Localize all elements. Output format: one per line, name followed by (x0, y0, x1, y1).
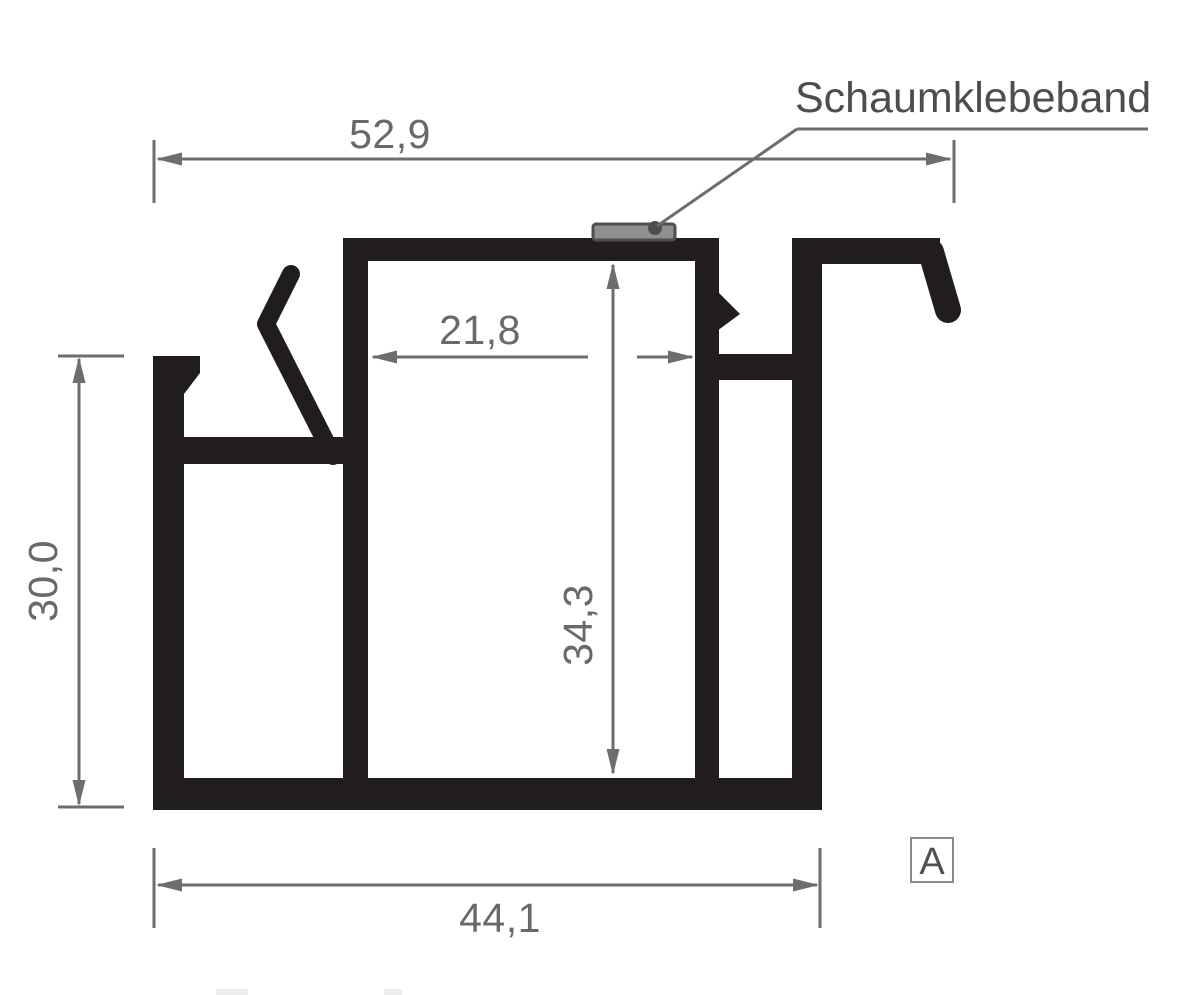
arrowhead-down (607, 749, 620, 775)
arrowhead-right (668, 351, 694, 364)
arrowhead-down (73, 780, 86, 806)
profile-right-shelf (719, 354, 796, 380)
profile-gasket-arm (266, 274, 333, 456)
artifact-mark (216, 989, 248, 995)
profile-top-arm (792, 238, 940, 264)
arrowhead-up (73, 357, 86, 383)
dimension-value-top-width: 52,9 (349, 111, 431, 157)
arrowhead-left (371, 351, 397, 364)
dimension-value-inner-height: 34,3 (555, 584, 601, 666)
leader-diagonal (657, 129, 797, 226)
dimension-left-height: 30,0 (20, 356, 124, 807)
technical-drawing-page: Schaumklebeband 52,9 21,8 34,3 30,0 (0, 0, 1186, 995)
profile-cross-section (153, 238, 948, 810)
dimension-value-bottom-width: 44,1 (459, 895, 541, 941)
arrowhead-left (156, 879, 182, 892)
profile-bottom-bar (155, 778, 822, 810)
profile-hook-finger (931, 252, 948, 310)
arrowhead-left (156, 153, 182, 166)
foam-tape-strip (593, 224, 675, 240)
profile-left-wall (153, 356, 184, 810)
arrowhead-right (793, 879, 819, 892)
profile-left-wall-head (153, 356, 200, 394)
annotation-label: Schaumklebeband (795, 74, 1151, 122)
detail-marker: A (911, 838, 953, 883)
dimension-bottom-width: 44,1 (154, 848, 820, 941)
artifact-mark (384, 989, 402, 995)
arrowhead-right (926, 153, 952, 166)
profile-central-box (343, 238, 719, 810)
dimension-inner-width: 21,8 (371, 307, 694, 364)
profile-tooth (717, 291, 740, 331)
detail-marker-label: A (919, 841, 945, 883)
dimension-value-left-height: 30,0 (20, 540, 66, 622)
dimension-top-width: 52,9 (154, 111, 954, 203)
arrowhead-up (607, 263, 620, 289)
profile-drawing-canvas: Schaumklebeband 52,9 21,8 34,3 30,0 (0, 0, 1186, 995)
profile-right-bar (792, 238, 822, 810)
dimension-inner-height: 34,3 (555, 263, 620, 775)
annotation-schaumklebeband: Schaumklebeband (657, 74, 1151, 226)
dimension-value-inner-width: 21,8 (439, 307, 521, 353)
bottom-edge-artifacts (216, 989, 402, 995)
